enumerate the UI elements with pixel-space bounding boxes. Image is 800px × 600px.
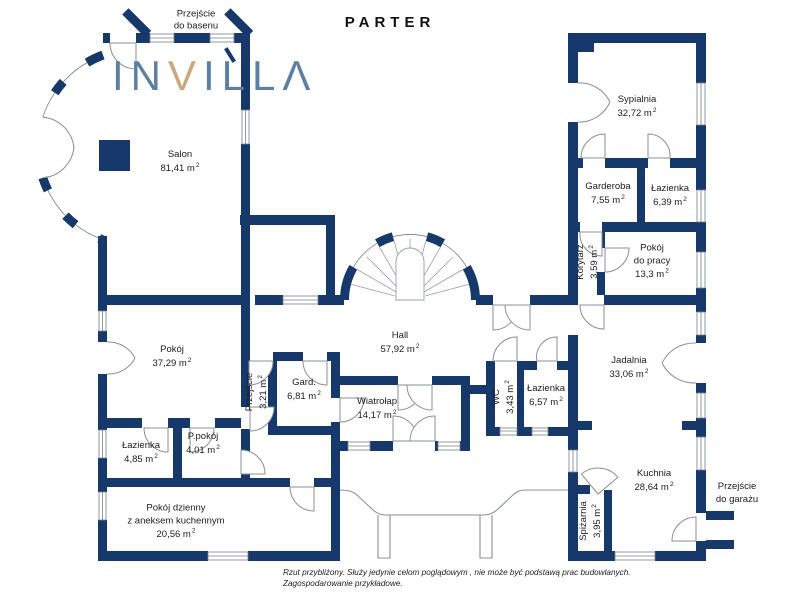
annotation-garage-passage: Przejście do garażu xyxy=(716,481,758,507)
room-label-spizarnia: Spiżarnia 3,95 m2 xyxy=(578,501,604,541)
room-label-korytarz: Korytarz 3,59 m2 xyxy=(575,244,601,279)
floor-plan-page: PARTER INVILLΛ Przejście do basenu Przej… xyxy=(0,0,800,600)
room-label-salon: Salon 81,41 m2 xyxy=(161,149,200,175)
room-label-sypialnia: Sypialnia 32,72 m2 xyxy=(618,94,657,120)
room-label-wc: WC 3,43 m2 xyxy=(491,380,517,414)
room-label-gard: Gard. 6,81 m2 xyxy=(287,377,321,403)
room-label-hall: Hall 57,92 m2 xyxy=(381,330,420,356)
annotation-pool-passage: Przejście do basenu xyxy=(174,9,218,34)
room-label-pokoj-do-pracy: Pokój do pracy 13,3 m2 xyxy=(634,243,670,282)
disclaimer: Rzut przybliżony. Służy jedynie celom po… xyxy=(283,567,631,589)
invilla-logo: INVILLΛ xyxy=(112,52,317,100)
room-label-lazienka-gora: Łazienka 6,39 m2 xyxy=(651,183,689,209)
room-label-wiatrolap: Wiatrołap 14,17 m2 xyxy=(357,396,397,422)
staircase xyxy=(345,234,476,300)
room-label-przejscie: Przejście 3,21 m2 xyxy=(244,373,270,412)
terrace xyxy=(340,490,568,558)
room-label-pokoj: Pokój 37,29 m2 xyxy=(153,344,192,370)
room-label-lazienka-dol: Łazienka 4,85 m2 xyxy=(122,440,160,466)
room-label-kuchnia: Kuchnia 28,64 m2 xyxy=(635,468,674,494)
page-title: PARTER xyxy=(345,14,436,31)
logo-part1: IN xyxy=(112,52,168,99)
fireplace xyxy=(99,140,130,171)
logo-accent-letter: V xyxy=(168,52,203,99)
room-label-jadalnia: Jadalnia 33,06 m2 xyxy=(610,355,649,381)
room-label-p-pokoj: P.pokój 4,01 m2 xyxy=(186,431,220,457)
logo-part2: ILLΛ xyxy=(203,52,317,99)
room-label-garderoba: Garderoba 7,55 m2 xyxy=(585,181,630,207)
room-label-lazienka-hall: Łazienka 6,57 m2 xyxy=(527,383,565,409)
room-label-pokoj-dzienny: Pokój dzienny z aneksem kuchennym 20,56 … xyxy=(127,503,224,542)
stair-void xyxy=(396,248,424,300)
